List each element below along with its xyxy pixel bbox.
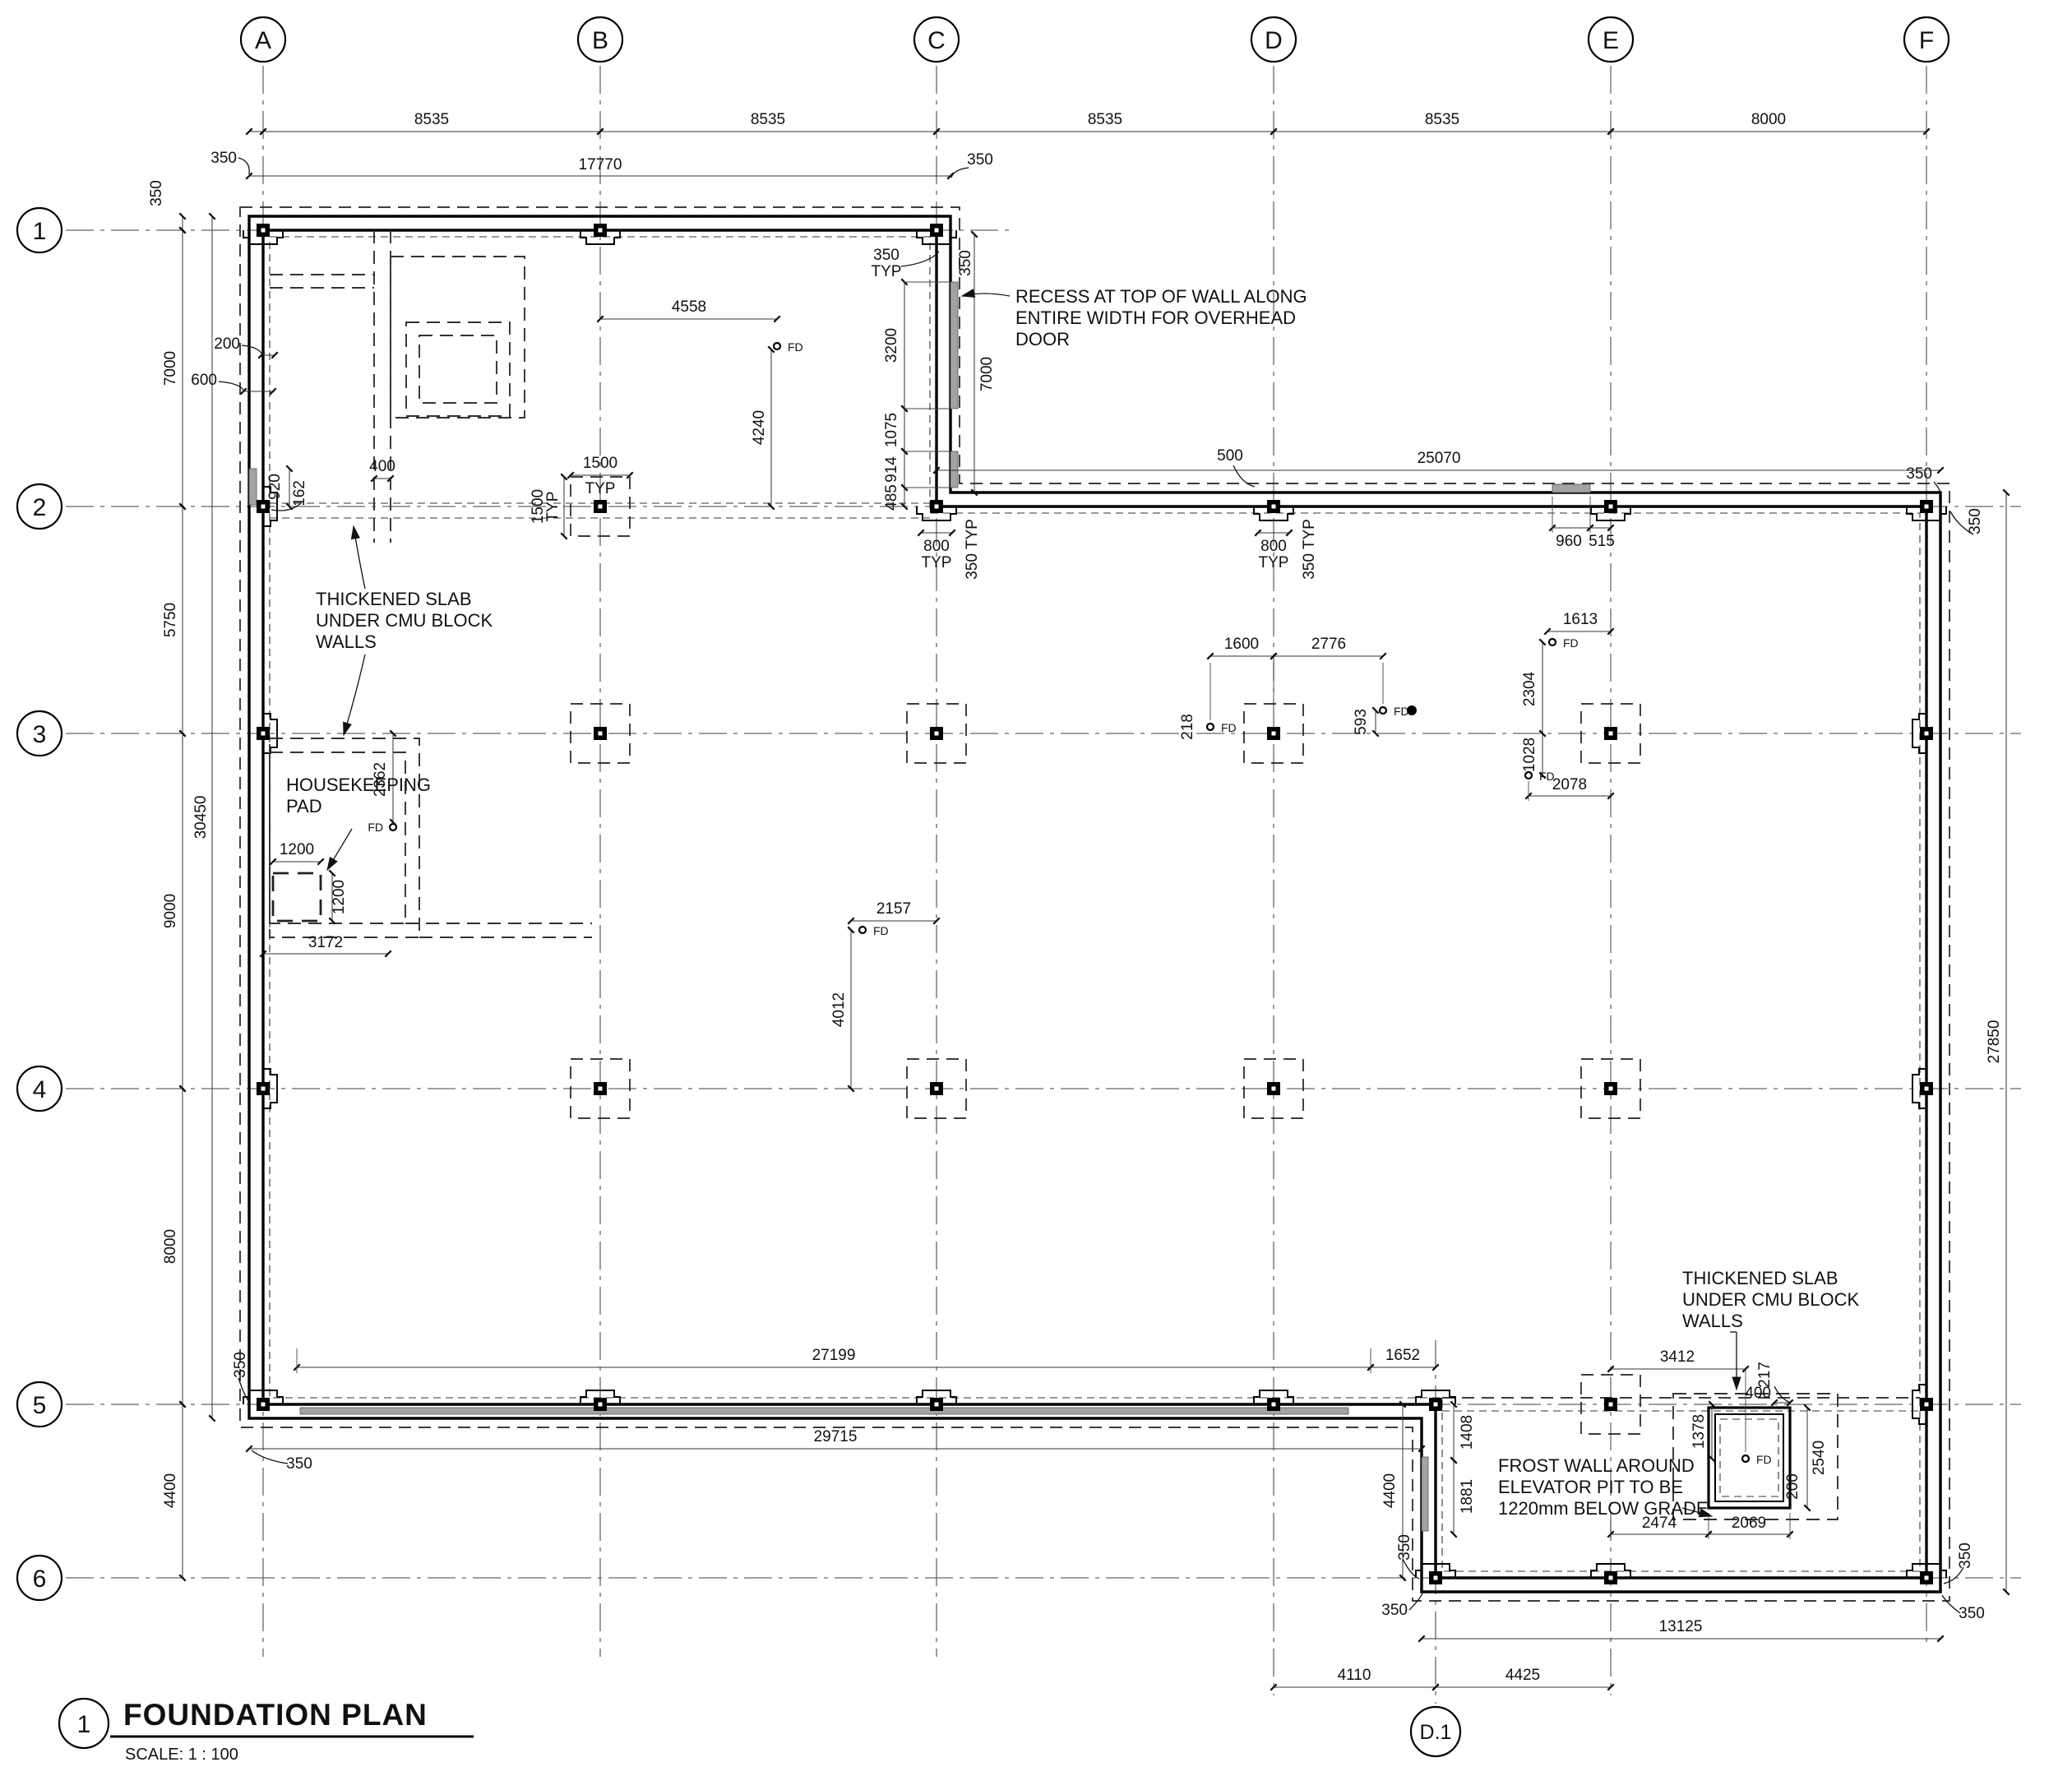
column-D2 bbox=[1254, 500, 1293, 520]
dim-label: 4012 bbox=[830, 992, 848, 1027]
dim-label: 9000 bbox=[162, 894, 179, 928]
fd-label: FD bbox=[1756, 1453, 1772, 1466]
dim-label: 485 bbox=[883, 484, 900, 511]
wall-recess-small bbox=[950, 451, 958, 488]
dim-label: 8535 bbox=[751, 111, 785, 128]
dim-label: 400 bbox=[369, 458, 395, 475]
view-number: 1 bbox=[77, 1711, 91, 1738]
dim-label: 350 bbox=[957, 250, 974, 276]
note-frost-line3: 1220mm BELOW GRADE bbox=[1498, 1498, 1709, 1519]
dim-label: 4400 bbox=[1381, 1473, 1399, 1508]
column-C2 bbox=[917, 500, 956, 520]
dim-label: 27850 bbox=[1986, 1020, 2003, 1064]
interior-dashed-features bbox=[270, 230, 1838, 1519]
foundation-wall-outer bbox=[249, 216, 1940, 1592]
note-recess-line1: RECESS AT TOP OF WALL ALONG bbox=[1015, 286, 1307, 307]
dim-label: 162 bbox=[291, 480, 308, 506]
dim-label: 2157 bbox=[876, 900, 911, 918]
duct-pit-outer bbox=[406, 322, 510, 416]
note-frost-line1: FROST WALL AROUND bbox=[1498, 1455, 1695, 1476]
dim-label: 3200 bbox=[883, 328, 900, 363]
dim-label: 350 bbox=[148, 180, 165, 206]
wall-recess-d1 bbox=[1422, 1457, 1428, 1531]
floor-drain-icon bbox=[774, 343, 780, 349]
grid-label-6: 6 bbox=[33, 1566, 47, 1593]
duct-pit-inner bbox=[419, 335, 497, 403]
wall-recess-row2 bbox=[1552, 484, 1590, 493]
dim-label: TYP bbox=[872, 263, 902, 280]
floor-drain-icon bbox=[1742, 1455, 1749, 1462]
note-frost-line2: ELEVATOR PIT TO BE bbox=[1498, 1477, 1683, 1497]
dim-label: 17770 bbox=[579, 156, 622, 173]
dim-label: 914 bbox=[883, 456, 900, 483]
dim-label: TYP bbox=[1259, 554, 1289, 571]
fd-label: FD bbox=[1563, 636, 1579, 650]
note-slab2-line1: THICKENED SLAB bbox=[1682, 1268, 1838, 1288]
dim-label: 1378 bbox=[1690, 1414, 1708, 1449]
grid-label-5: 5 bbox=[33, 1392, 47, 1419]
columns-perimeter bbox=[243, 224, 1946, 1584]
dimensions: 8535 8535 8535 8535 8000 17770 350 350 7… bbox=[148, 111, 2006, 1687]
dim-label: 800 bbox=[1260, 538, 1287, 555]
dim-label: 350 TYP bbox=[1301, 519, 1318, 580]
columns-interior bbox=[571, 477, 1640, 1434]
dim-label: 8535 bbox=[1088, 111, 1122, 128]
column-E2 bbox=[1591, 500, 1630, 520]
footing-inner-dashed bbox=[270, 237, 1920, 1571]
view-scale: SCALE: 1 : 100 bbox=[125, 1746, 238, 1764]
drain-point-icon bbox=[1407, 705, 1417, 715]
dim-label: 500 bbox=[1217, 447, 1243, 465]
dim-label: 2069 bbox=[1732, 1515, 1766, 1532]
dim-label: 3412 bbox=[1660, 1348, 1695, 1366]
dim-label: 7000 bbox=[978, 357, 996, 391]
dim-label: 1881 bbox=[1459, 1479, 1476, 1514]
dim-label: 350 bbox=[873, 247, 900, 264]
note-slab2-line2: UNDER CMU BLOCK bbox=[1682, 1289, 1859, 1310]
fd-symbols: FD FD FD FD FD FD FD FD bbox=[368, 340, 1771, 1466]
dim-label: 1500 bbox=[583, 455, 617, 472]
foundation-plan-sheet: A B C D E F 1 2 3 4 5 6 D.1 bbox=[0, 0, 2072, 1776]
dim-label: 1408 bbox=[1459, 1415, 1476, 1450]
grid-label-B: B bbox=[592, 27, 608, 54]
dim-label: 960 bbox=[1556, 533, 1582, 550]
dim-label: 1652 bbox=[1385, 1347, 1420, 1364]
dim-label: 350 bbox=[1957, 1542, 1974, 1569]
dim-label: 1200 bbox=[331, 880, 348, 914]
dim-label: 4110 bbox=[1338, 1667, 1371, 1684]
floor-drain-icon bbox=[1525, 772, 1532, 779]
dim-label: 217 bbox=[1756, 1362, 1774, 1388]
dim-label: 200 bbox=[1784, 1473, 1801, 1500]
grid-label-A: A bbox=[255, 27, 271, 54]
fd-label: FD bbox=[788, 340, 803, 354]
dim-label: 8535 bbox=[414, 111, 449, 128]
housekeeping-pad bbox=[273, 873, 321, 921]
dim-label: 1613 bbox=[1563, 611, 1598, 628]
dim-label: TYP bbox=[922, 554, 952, 571]
note-housekeeping-line1: HOUSEKEEPING bbox=[286, 775, 431, 795]
dim-label: 350 bbox=[1381, 1602, 1408, 1619]
dim-label: 200 bbox=[214, 335, 240, 353]
view-title: FOUNDATION PLAN bbox=[123, 1698, 428, 1732]
dim-label: 218 bbox=[1179, 714, 1196, 740]
fd-label: FD bbox=[1221, 721, 1237, 734]
column-B1 bbox=[580, 224, 620, 244]
column-F4 bbox=[1912, 1069, 1933, 1108]
note-recess-line2: ENTIRE WIDTH FOR OVERHEAD bbox=[1015, 308, 1296, 328]
dim-label: 8000 bbox=[162, 1229, 179, 1264]
note-slab1-line3: WALLS bbox=[316, 631, 377, 652]
grid-label-3: 3 bbox=[33, 721, 47, 748]
note-recess-line3: DOOR bbox=[1015, 329, 1070, 349]
dim-label: 350 bbox=[286, 1455, 312, 1473]
dim-label: 350 bbox=[232, 1352, 249, 1378]
dim-label: 350 bbox=[1967, 508, 1984, 534]
grid-label-D1: D.1 bbox=[1420, 1721, 1452, 1744]
dim-label: 27199 bbox=[812, 1347, 856, 1364]
grid-label-4: 4 bbox=[33, 1076, 47, 1103]
column-F3 bbox=[1912, 714, 1933, 753]
dim-label: 2776 bbox=[1311, 636, 1346, 653]
grid-label-2: 2 bbox=[33, 494, 47, 521]
overhead-door-recess bbox=[950, 282, 958, 409]
slab-recess-band bbox=[300, 1408, 1348, 1414]
column-F5 bbox=[1912, 1385, 1933, 1424]
dim-label: 4425 bbox=[1505, 1667, 1540, 1684]
dim-label: TYP bbox=[585, 480, 616, 497]
grid-label-C: C bbox=[927, 27, 946, 54]
dim-label: 2540 bbox=[1811, 1441, 1828, 1475]
dim-label: 350 TYP bbox=[964, 519, 981, 580]
dim-label: 600 bbox=[191, 372, 217, 389]
note-slab1-line1: THICKENED SLAB bbox=[316, 589, 472, 609]
foundation-plan-drawing: A B C D E F 1 2 3 4 5 6 D.1 bbox=[0, 0, 2072, 1776]
floor-drain-icon bbox=[1380, 707, 1386, 714]
dim-label: 1075 bbox=[883, 413, 900, 447]
dim-label: TYP bbox=[544, 492, 562, 522]
floor-drain-icon bbox=[390, 824, 396, 830]
dim-label: 350 bbox=[967, 151, 993, 169]
dim-label: 4400 bbox=[162, 1473, 179, 1508]
dim-label: 7000 bbox=[162, 351, 179, 386]
grid-label-E: E bbox=[1603, 27, 1619, 54]
floor-drain-icon bbox=[859, 927, 866, 933]
dim-label: 350 bbox=[1959, 1605, 1985, 1622]
note-housekeeping-line2: PAD bbox=[286, 796, 322, 816]
dim-label: 920 bbox=[266, 474, 284, 500]
dim-label: 1028 bbox=[1521, 738, 1538, 772]
dim-label: 25070 bbox=[1418, 450, 1461, 467]
dim-label: 515 bbox=[1589, 533, 1615, 550]
dim-label: 4240 bbox=[751, 410, 768, 445]
dim-label: 29715 bbox=[814, 1428, 858, 1445]
foundation-wall-inner bbox=[263, 230, 1926, 1578]
dim-label: 350 bbox=[1906, 465, 1932, 483]
dim-label: 3172 bbox=[308, 934, 343, 951]
dim-label: 350 bbox=[1396, 1534, 1413, 1561]
note-slab1-line2: UNDER CMU BLOCK bbox=[316, 610, 493, 631]
dim-label: 2304 bbox=[1521, 671, 1538, 706]
title-block: 1 FOUNDATION PLAN SCALE: 1 : 100 bbox=[59, 1698, 474, 1764]
dim-label: 800 bbox=[923, 538, 950, 555]
dim-label: 350 bbox=[210, 150, 237, 167]
fd-label: FD bbox=[368, 821, 383, 834]
dim-label: 5750 bbox=[162, 603, 179, 637]
dim-label: 1200 bbox=[280, 841, 314, 858]
note-slab2-line3: WALLS bbox=[1682, 1311, 1743, 1331]
grid-label-D: D bbox=[1265, 27, 1283, 54]
grid-label-F: F bbox=[1919, 27, 1934, 54]
fd-label: FD bbox=[873, 924, 889, 937]
floor-drain-icon bbox=[1549, 639, 1556, 645]
dim-label: 8535 bbox=[1425, 111, 1459, 128]
dim-label: 13125 bbox=[1659, 1618, 1703, 1635]
dim-label: 2078 bbox=[1552, 776, 1587, 793]
dim-label: 593 bbox=[1353, 709, 1370, 735]
dim-label: 1600 bbox=[1224, 636, 1259, 653]
floor-drain-icon bbox=[1207, 724, 1214, 730]
dim-label: 4558 bbox=[672, 298, 706, 316]
cmu-slab-outline-a1 bbox=[391, 257, 525, 418]
fd-label: FD bbox=[1394, 705, 1409, 718]
grid-label-1: 1 bbox=[33, 218, 47, 245]
notes: RECESS AT TOP OF WALL ALONG ENTIRE WIDTH… bbox=[286, 286, 1859, 1519]
dim-label: 30450 bbox=[192, 796, 210, 839]
dim-label: 8000 bbox=[1751, 111, 1786, 128]
wall-recess-left bbox=[249, 469, 257, 505]
